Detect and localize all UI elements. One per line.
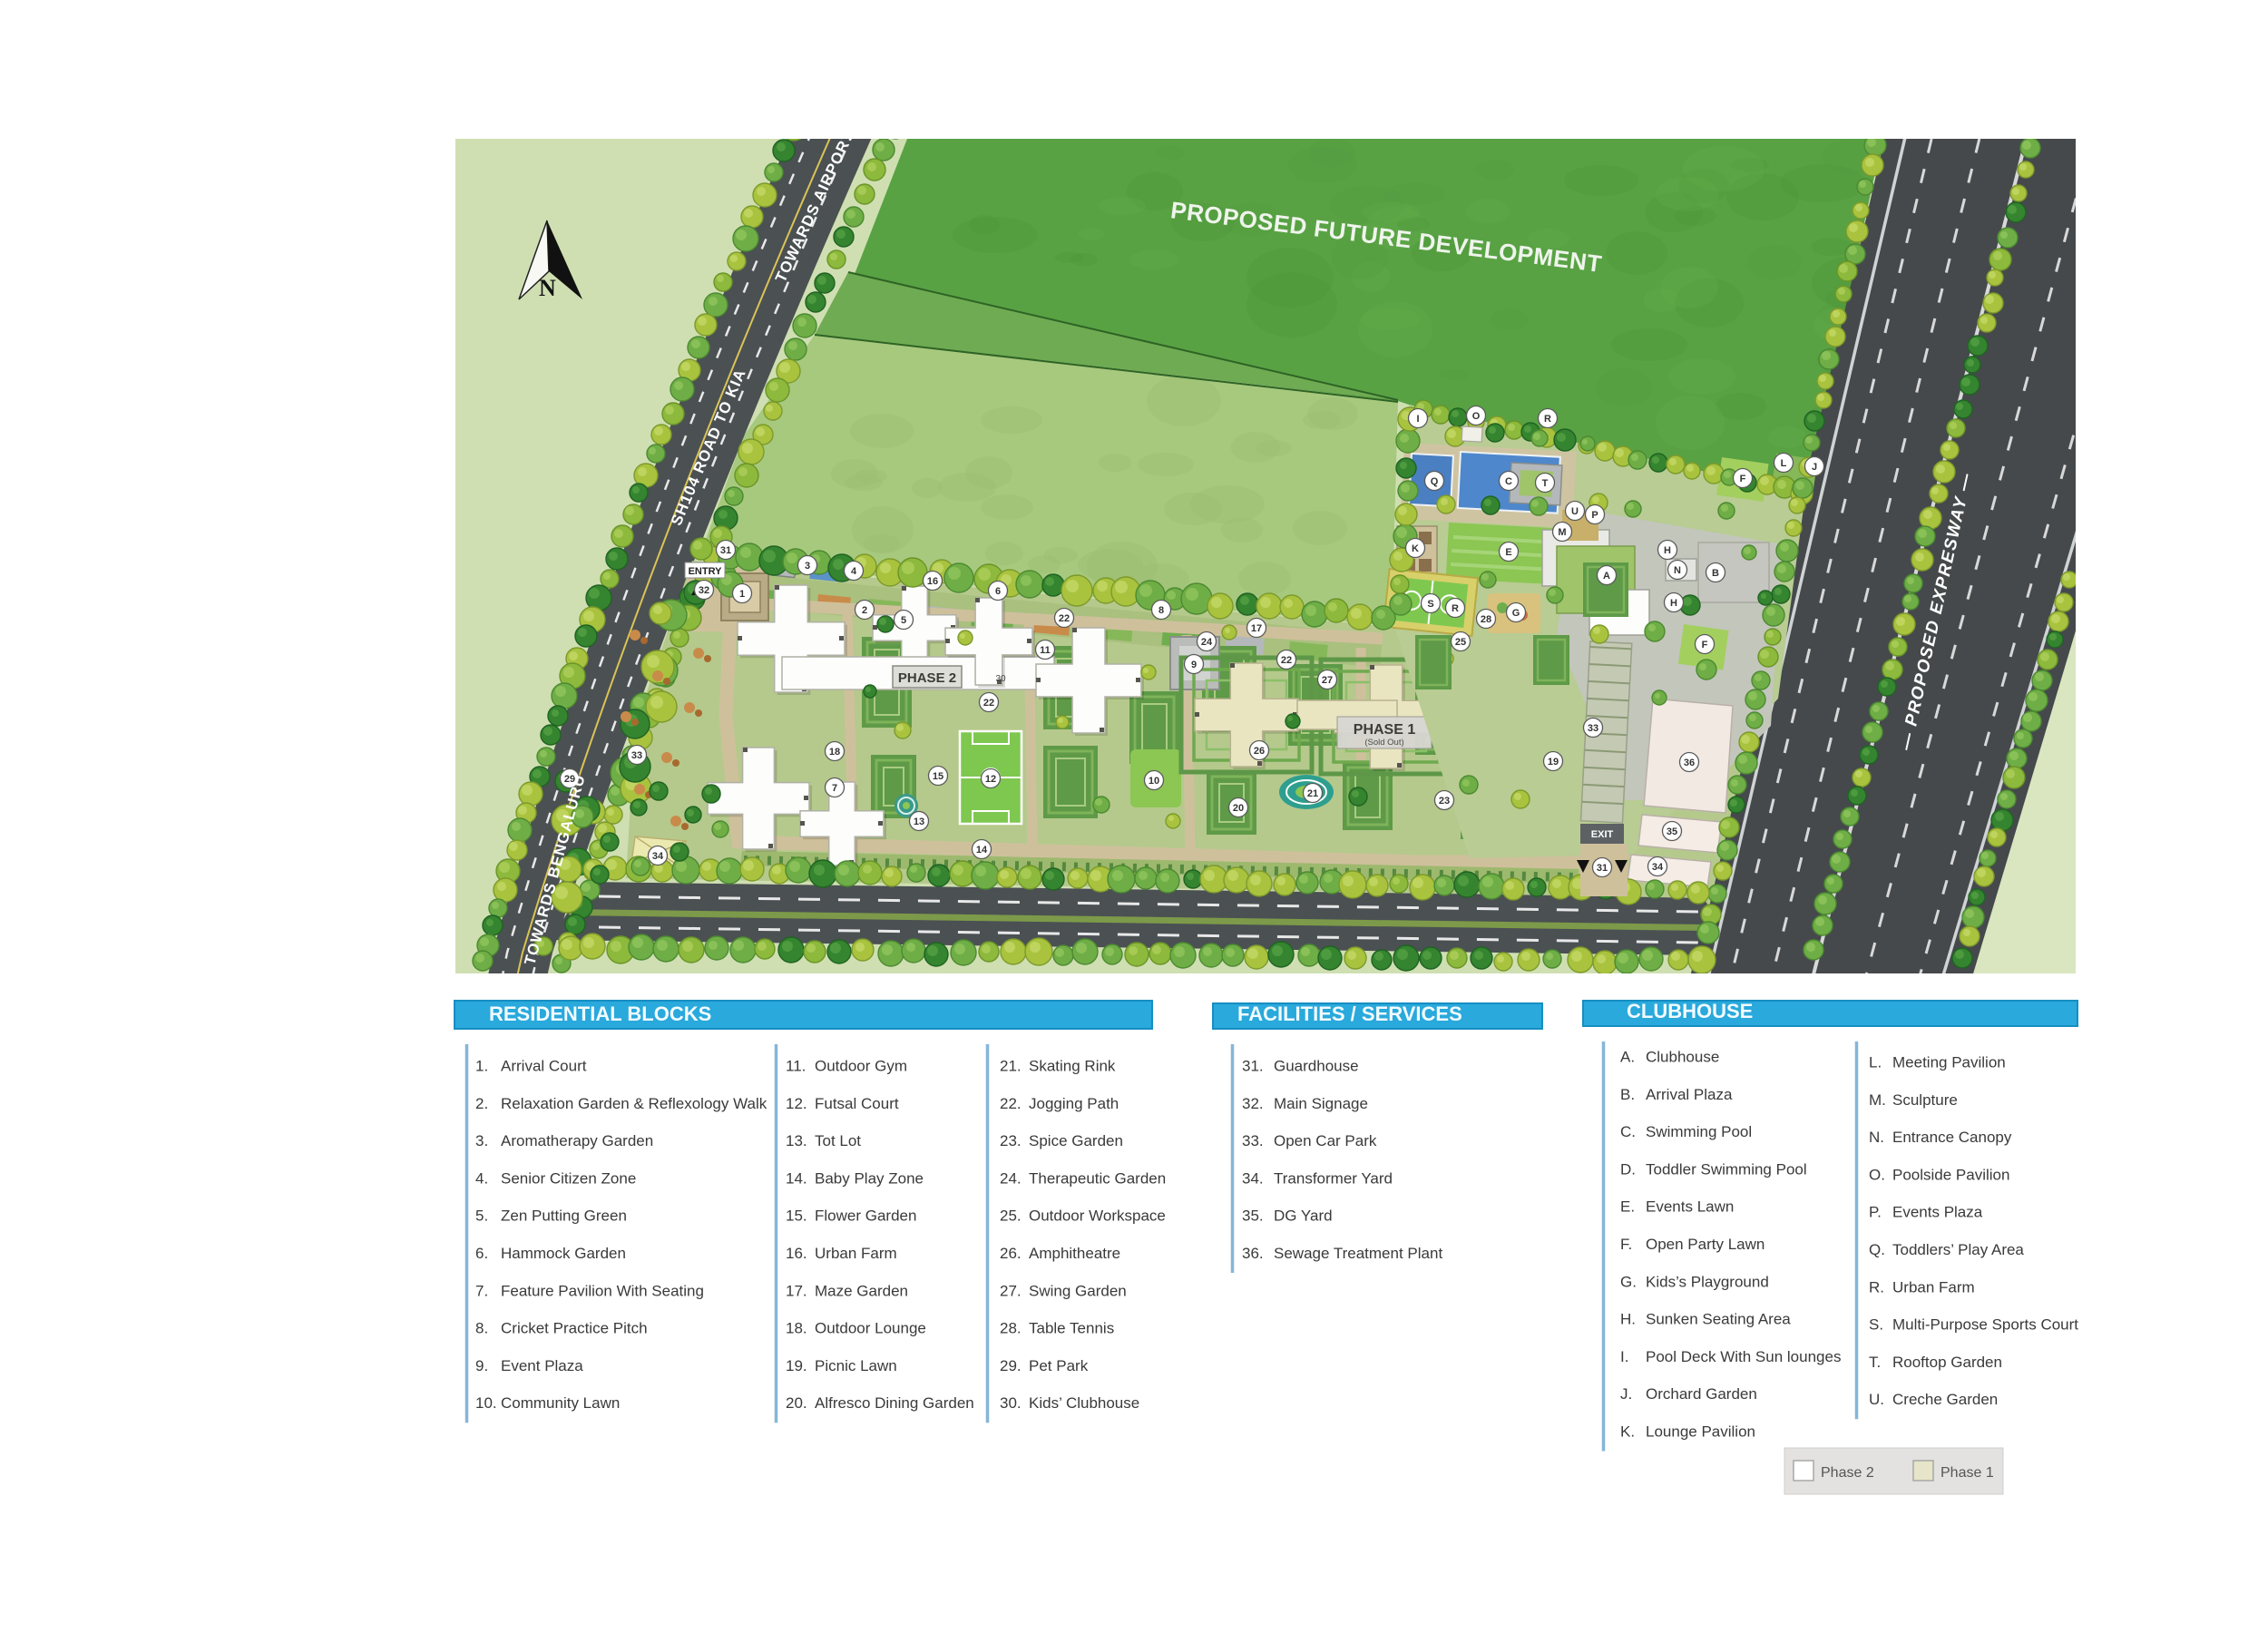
svg-text:M: M — [1558, 527, 1566, 538]
svg-text:Table Tennis: Table Tennis — [1029, 1320, 1114, 1337]
svg-text:J: J — [1812, 462, 1817, 473]
svg-text:Spice Garden: Spice Garden — [1029, 1132, 1123, 1149]
svg-text:24.: 24. — [1000, 1169, 1022, 1187]
svg-text:6: 6 — [995, 586, 1001, 597]
svg-text:13.: 13. — [786, 1132, 807, 1149]
svg-text:Clubhouse: Clubhouse — [1646, 1049, 1719, 1066]
svg-text:16.: 16. — [786, 1245, 807, 1262]
svg-text:Orchard Garden: Orchard Garden — [1646, 1385, 1757, 1403]
svg-text:EXIT: EXIT — [1591, 829, 1614, 840]
svg-text:A.: A. — [1620, 1049, 1635, 1066]
svg-text:8: 8 — [1158, 605, 1164, 616]
svg-text:18: 18 — [829, 747, 840, 758]
svg-text:24: 24 — [1201, 637, 1213, 648]
svg-text:15: 15 — [933, 771, 943, 782]
svg-text:F: F — [1740, 474, 1746, 484]
svg-text:I.: I. — [1620, 1348, 1628, 1365]
svg-text:FACILITIES / SERVICES: FACILITIES / SERVICES — [1237, 1002, 1462, 1025]
svg-text:33: 33 — [631, 750, 642, 761]
svg-text:Outdoor Lounge: Outdoor Lounge — [815, 1320, 926, 1337]
svg-text:21: 21 — [1307, 788, 1318, 799]
svg-text:22: 22 — [1059, 613, 1070, 624]
svg-text:Pool Deck With Sun lounges: Pool Deck With Sun lounges — [1646, 1348, 1841, 1365]
svg-text:22.: 22. — [1000, 1095, 1022, 1112]
svg-text:P: P — [1591, 510, 1598, 521]
svg-text:Amphitheatre: Amphitheatre — [1029, 1245, 1120, 1262]
svg-text:9: 9 — [1191, 660, 1197, 670]
svg-text:Meeting Pavilion: Meeting Pavilion — [1892, 1054, 2006, 1071]
svg-text:Skating Rink: Skating Rink — [1029, 1058, 1116, 1075]
svg-text:Arrival Court: Arrival Court — [501, 1058, 587, 1075]
svg-text:Pet Park: Pet Park — [1029, 1357, 1089, 1374]
svg-text:16: 16 — [927, 576, 938, 587]
svg-text:Swimming Pool: Swimming Pool — [1646, 1123, 1752, 1140]
svg-text:Open Party Lawn: Open Party Lawn — [1646, 1236, 1765, 1253]
svg-text:3.: 3. — [475, 1132, 488, 1149]
svg-text:20: 20 — [1233, 803, 1244, 814]
svg-text:Phase 1: Phase 1 — [1941, 1465, 1994, 1481]
svg-text:Multi-Purpose Sports Court: Multi-Purpose Sports Court — [1892, 1316, 2078, 1334]
svg-text:E.: E. — [1620, 1198, 1635, 1216]
svg-text:25: 25 — [1455, 637, 1466, 648]
svg-text:Lounge Pavilion: Lounge Pavilion — [1646, 1423, 1755, 1441]
svg-text:U.: U. — [1869, 1391, 1884, 1408]
svg-text:C.: C. — [1620, 1123, 1636, 1140]
svg-text:8.: 8. — [475, 1320, 488, 1337]
svg-text:21.: 21. — [1000, 1058, 1022, 1075]
svg-text:Poolside Pavilion: Poolside Pavilion — [1892, 1166, 2009, 1183]
svg-text:1: 1 — [739, 589, 745, 600]
svg-text:Toddlers’ Play Area: Toddlers’ Play Area — [1892, 1241, 2024, 1258]
svg-text:RESIDENTIAL BLOCKS: RESIDENTIAL BLOCKS — [489, 1002, 711, 1025]
svg-text:Flower Garden: Flower Garden — [815, 1208, 916, 1225]
svg-text:27.: 27. — [1000, 1282, 1022, 1299]
svg-text:22: 22 — [1281, 655, 1292, 666]
svg-text:Phase 2: Phase 2 — [1821, 1465, 1874, 1481]
svg-text:K.: K. — [1620, 1423, 1635, 1441]
svg-text:34: 34 — [1652, 862, 1664, 873]
svg-text:5: 5 — [901, 615, 906, 626]
svg-text:Hammock Garden: Hammock Garden — [501, 1245, 626, 1262]
svg-text:Guardhouse: Guardhouse — [1274, 1058, 1359, 1075]
svg-text:34: 34 — [652, 851, 664, 862]
svg-text:35: 35 — [1667, 826, 1677, 837]
svg-text:32: 32 — [699, 585, 709, 596]
svg-text:Sunken Seating Area: Sunken Seating Area — [1646, 1311, 1791, 1328]
svg-text:17: 17 — [1251, 623, 1262, 634]
svg-text:M.: M. — [1869, 1091, 1886, 1109]
svg-text:Jogging Path: Jogging Path — [1029, 1095, 1119, 1112]
svg-text:S: S — [1427, 599, 1433, 610]
svg-text:Therapeutic Garden: Therapeutic Garden — [1029, 1169, 1166, 1187]
svg-text:29.: 29. — [1000, 1357, 1022, 1374]
svg-text:1.: 1. — [475, 1058, 488, 1075]
svg-text:35.: 35. — [1242, 1208, 1264, 1225]
svg-text:Relaxation Garden & Reflexolo: Relaxation Garden & Reflexology Walk — [501, 1095, 767, 1112]
svg-text:13: 13 — [914, 816, 924, 827]
svg-text:A: A — [1603, 571, 1610, 582]
svg-text:33: 33 — [1588, 723, 1598, 734]
svg-text:3: 3 — [805, 561, 810, 572]
svg-text:Main Signage: Main Signage — [1274, 1095, 1368, 1112]
svg-text:Events Plaza: Events Plaza — [1892, 1204, 1983, 1221]
svg-text:15.: 15. — [786, 1208, 807, 1225]
svg-text:O: O — [1472, 411, 1481, 422]
svg-text:20.: 20. — [786, 1394, 807, 1412]
svg-text:Arrival Plaza: Arrival Plaza — [1646, 1086, 1733, 1103]
svg-text:28.: 28. — [1000, 1320, 1022, 1337]
svg-text:S.: S. — [1869, 1316, 1883, 1334]
svg-text:Community Lawn: Community Lawn — [501, 1394, 620, 1412]
svg-text:Cricket Practice Pitch: Cricket Practice Pitch — [501, 1320, 648, 1337]
svg-text:G: G — [1512, 608, 1520, 619]
svg-text:L: L — [1781, 458, 1787, 469]
svg-text:Urban Farm: Urban Farm — [815, 1245, 897, 1262]
svg-text:Futsal Court: Futsal Court — [815, 1095, 899, 1112]
svg-text:33.: 33. — [1242, 1132, 1264, 1149]
svg-text:DG Yard: DG Yard — [1274, 1208, 1333, 1225]
svg-text:(Sold Out): (Sold Out) — [1364, 738, 1403, 748]
svg-text:PHASE 2: PHASE 2 — [898, 670, 956, 686]
svg-text:Zen Putting Green: Zen Putting Green — [501, 1208, 627, 1225]
svg-text:H: H — [1664, 545, 1671, 556]
svg-text:Entrance Canopy: Entrance Canopy — [1892, 1129, 2012, 1146]
svg-text:30.: 30. — [1000, 1394, 1022, 1412]
svg-text:F.: F. — [1620, 1236, 1632, 1253]
svg-text:Toddler Swimming Pool: Toddler Swimming Pool — [1646, 1160, 1807, 1178]
svg-text:11.: 11. — [786, 1058, 806, 1075]
svg-text:36.: 36. — [1242, 1245, 1264, 1262]
svg-text:D.: D. — [1620, 1160, 1636, 1178]
svg-text:L.: L. — [1869, 1054, 1882, 1071]
svg-text:12: 12 — [985, 774, 996, 785]
svg-text:14: 14 — [976, 845, 988, 856]
svg-text:N: N — [539, 275, 556, 301]
svg-text:B: B — [1712, 568, 1719, 579]
svg-text:4: 4 — [851, 566, 857, 577]
svg-text:H.: H. — [1620, 1311, 1636, 1328]
svg-text:19.: 19. — [786, 1357, 807, 1374]
svg-text:19: 19 — [1548, 757, 1559, 768]
svg-text:R: R — [1452, 603, 1459, 614]
svg-text:ENTRY: ENTRY — [689, 566, 723, 577]
svg-text:36: 36 — [1684, 758, 1695, 768]
svg-text:22: 22 — [983, 698, 994, 709]
svg-text:Kids’s Playground: Kids’s Playground — [1646, 1273, 1769, 1290]
svg-text:P.: P. — [1869, 1204, 1882, 1221]
svg-text:30: 30 — [995, 674, 1006, 684]
svg-text:Creche Garden: Creche Garden — [1892, 1391, 1998, 1408]
svg-text:23.: 23. — [1000, 1132, 1022, 1149]
svg-text:12.: 12. — [786, 1095, 807, 1112]
svg-text:28: 28 — [1481, 614, 1491, 625]
svg-text:14.: 14. — [786, 1169, 807, 1187]
svg-text:Alfresco Dining Garden: Alfresco Dining Garden — [815, 1394, 974, 1412]
svg-text:Transformer Yard: Transformer Yard — [1274, 1169, 1393, 1187]
svg-text:Urban Farm: Urban Farm — [1892, 1278, 1975, 1296]
svg-text:23: 23 — [1439, 796, 1450, 807]
svg-text:C: C — [1505, 476, 1512, 487]
svg-text:17.: 17. — [786, 1282, 807, 1299]
svg-text:N: N — [1674, 565, 1681, 576]
svg-text:9.: 9. — [475, 1357, 488, 1374]
svg-text:25.: 25. — [1000, 1208, 1022, 1225]
svg-text:R: R — [1544, 414, 1551, 425]
svg-text:Swing Garden: Swing Garden — [1029, 1282, 1127, 1299]
svg-text:Maze Garden: Maze Garden — [815, 1282, 908, 1299]
svg-text:N.: N. — [1869, 1129, 1884, 1146]
svg-text:31: 31 — [720, 545, 731, 556]
svg-text:31: 31 — [1597, 863, 1608, 874]
svg-text:Kids’ Clubhouse: Kids’ Clubhouse — [1029, 1394, 1139, 1412]
svg-text:Feature Pavilion With Seating: Feature Pavilion With Seating — [501, 1282, 704, 1299]
svg-text:34.: 34. — [1242, 1169, 1264, 1187]
svg-text:G.: G. — [1620, 1273, 1637, 1290]
svg-text:Sculpture: Sculpture — [1892, 1091, 1958, 1109]
svg-text:Event Plaza: Event Plaza — [501, 1357, 583, 1374]
svg-text:B.: B. — [1620, 1086, 1635, 1103]
svg-text:Aromatherapy Garden: Aromatherapy Garden — [501, 1132, 653, 1149]
svg-text:6.: 6. — [475, 1245, 488, 1262]
svg-text:T.: T. — [1869, 1354, 1881, 1371]
svg-text:7: 7 — [832, 783, 837, 794]
svg-text:10.: 10. — [475, 1394, 497, 1412]
svg-text:Open Car Park: Open Car Park — [1274, 1132, 1377, 1149]
svg-text:5.: 5. — [475, 1208, 488, 1225]
svg-text:F: F — [1702, 640, 1708, 650]
svg-text:26: 26 — [1254, 746, 1265, 757]
svg-text:2.: 2. — [475, 1095, 488, 1112]
svg-text:11: 11 — [1040, 645, 1051, 656]
svg-text:7.: 7. — [475, 1282, 488, 1299]
svg-text:Senior Citizen Zone: Senior Citizen Zone — [501, 1169, 636, 1187]
svg-text:H: H — [1670, 598, 1677, 609]
svg-text:T: T — [1542, 478, 1549, 489]
svg-text:R.: R. — [1869, 1278, 1884, 1296]
svg-text:E: E — [1505, 547, 1511, 558]
svg-text:Tot Lot: Tot Lot — [815, 1132, 861, 1149]
svg-text:Q: Q — [1431, 476, 1439, 487]
svg-text:K: K — [1412, 543, 1419, 554]
svg-text:18.: 18. — [786, 1320, 807, 1337]
svg-text:Baby Play Zone: Baby Play Zone — [815, 1169, 924, 1187]
svg-text:27: 27 — [1322, 675, 1333, 686]
svg-text:31.: 31. — [1242, 1058, 1264, 1075]
svg-text:Events Lawn: Events Lawn — [1646, 1198, 1734, 1216]
svg-text:Picnic Lawn: Picnic Lawn — [815, 1357, 897, 1374]
svg-text:Outdoor Workspace: Outdoor Workspace — [1029, 1208, 1166, 1225]
svg-text:U: U — [1571, 506, 1579, 517]
svg-text:Outdoor Gym: Outdoor Gym — [815, 1058, 907, 1075]
svg-text:Q.: Q. — [1869, 1241, 1885, 1258]
svg-text:PHASE 1: PHASE 1 — [1354, 722, 1416, 738]
svg-text:32.: 32. — [1242, 1095, 1264, 1112]
svg-text:Sewage Treatment Plant: Sewage Treatment Plant — [1274, 1245, 1442, 1262]
svg-text:Rooftop Garden: Rooftop Garden — [1892, 1354, 2002, 1371]
svg-text:2: 2 — [862, 605, 867, 616]
svg-text:O.: O. — [1869, 1166, 1885, 1183]
svg-text:CLUBHOUSE: CLUBHOUSE — [1627, 1000, 1753, 1022]
svg-text:10: 10 — [1149, 776, 1159, 787]
svg-text:I: I — [1416, 414, 1419, 425]
svg-text:26.: 26. — [1000, 1245, 1022, 1262]
svg-text:4.: 4. — [475, 1169, 488, 1187]
svg-text:J.: J. — [1620, 1385, 1632, 1403]
